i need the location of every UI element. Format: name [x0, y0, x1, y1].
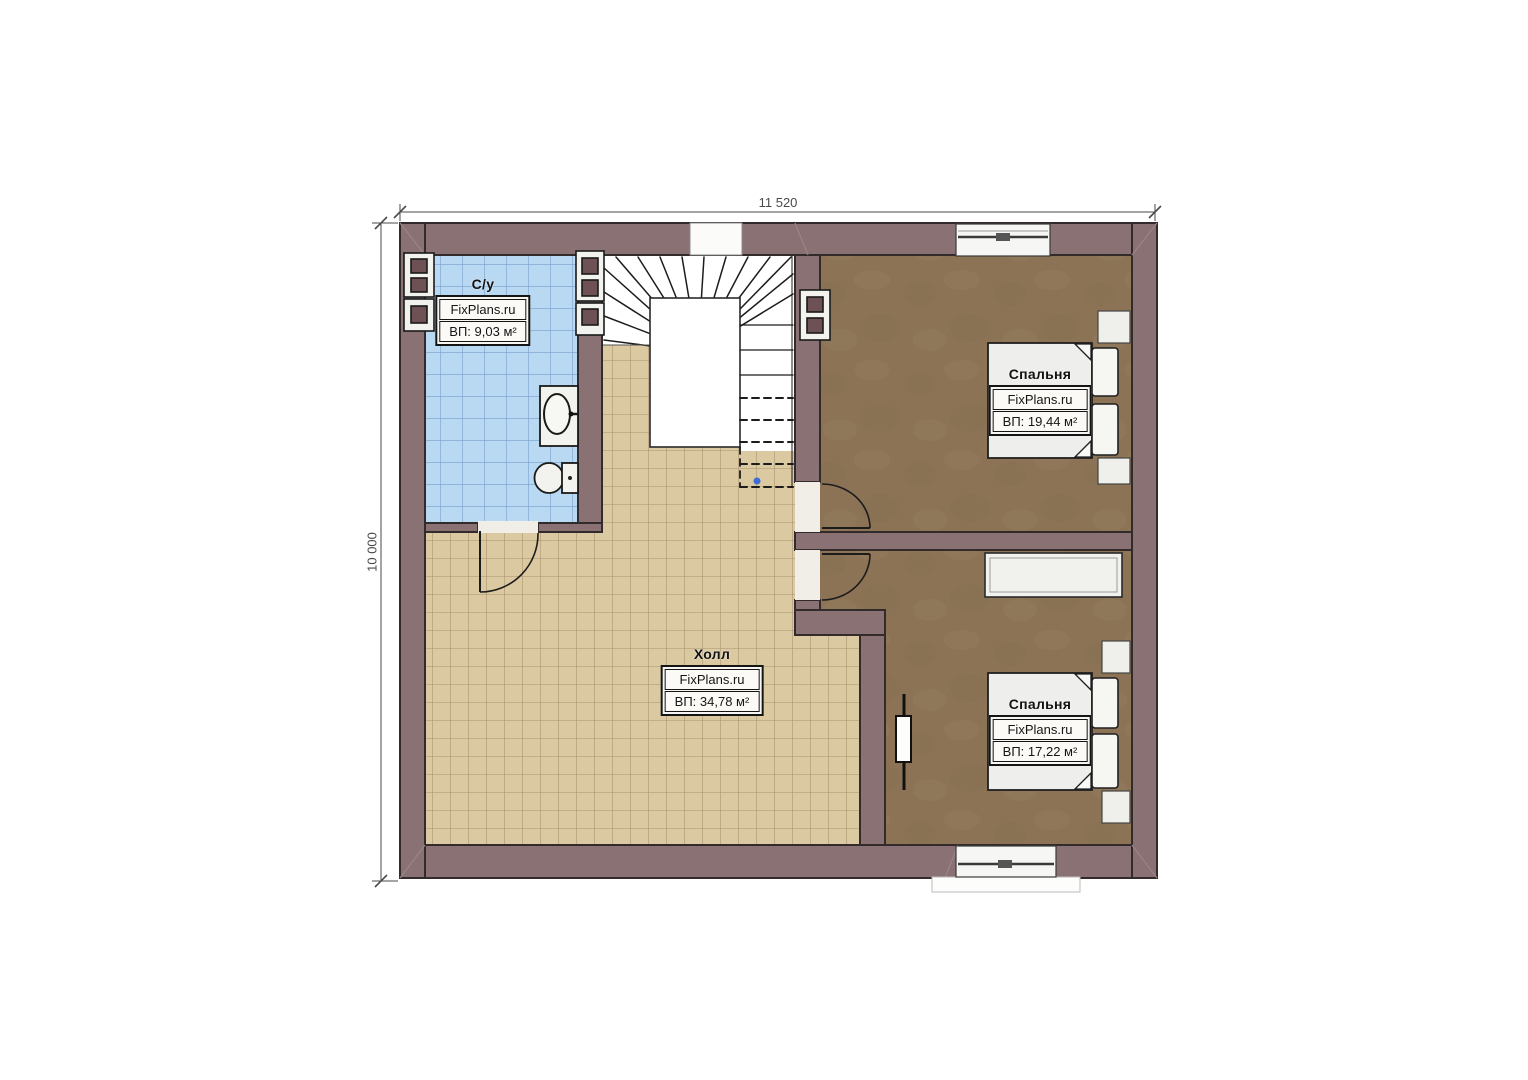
vent-block-bathroom-left-top: [404, 253, 434, 297]
wall-right: [1132, 223, 1157, 878]
dimension-top-label: 11 520: [759, 195, 798, 210]
room-name: Спальня: [989, 366, 1092, 382]
label-stack: FixPlans.ru ВП: 9,03 м²: [435, 295, 530, 346]
toilet: [535, 463, 579, 493]
wardrobe: [985, 553, 1122, 597]
vent-block-bathroom-right-bottom: [576, 303, 604, 335]
stair-landing: [650, 298, 740, 447]
pillow: [1092, 678, 1118, 728]
room-area: ВП: 17,22 м²: [993, 741, 1088, 762]
window-top-center: [690, 223, 742, 255]
room-label-bedroom-top: Спальня FixPlans.ru ВП: 19,44 м²: [989, 366, 1092, 436]
dimension-left-label: 10 000: [365, 532, 380, 572]
label-stack: FixPlans.ru ВП: 34,78 м²: [661, 665, 764, 716]
pillow: [1092, 404, 1118, 455]
watermark: FixPlans.ru: [993, 719, 1088, 740]
nightstand: [1102, 791, 1130, 823]
vent-block-bathroom-left-bottom: [404, 299, 434, 331]
wall-hall-bedrooms: [795, 255, 820, 482]
floor-plan-page: 11 520 10 000 С/у FixPlans.ru ВП: 9,03 м…: [0, 0, 1528, 1080]
wall-bathroom-bottom-left: [425, 523, 478, 532]
watermark: FixPlans.ru: [439, 299, 526, 320]
room-name: Холл: [661, 646, 764, 662]
nightstand: [1102, 641, 1130, 673]
room-area: ВП: 34,78 м²: [665, 691, 760, 712]
wall-jog-vertical: [860, 635, 885, 845]
wall-bathroom-bottom-right: [538, 523, 602, 532]
room-area: ВП: 19,44 м²: [993, 411, 1088, 432]
floor-plan-drawing: [0, 0, 1528, 1080]
room-name: С/у: [435, 276, 530, 292]
room-label-bedroom-bottom: Спальня FixPlans.ru ВП: 17,22 м²: [989, 696, 1092, 766]
room-label-bathroom: С/у FixPlans.ru ВП: 9,03 м²: [435, 276, 530, 346]
nightstand: [1098, 458, 1130, 484]
label-stack: FixPlans.ru ВП: 17,22 м²: [989, 715, 1092, 766]
vent-block-bathroom-right-top: [576, 251, 604, 301]
label-stack: FixPlans.ru ВП: 19,44 м²: [989, 385, 1092, 436]
wall-jog-horizontal: [795, 610, 885, 635]
room-area: ВП: 9,03 м²: [439, 321, 526, 342]
pillow: [1092, 734, 1118, 788]
room-name: Спальня: [989, 696, 1092, 712]
sink: [540, 386, 578, 446]
stair-marker-dot: [754, 478, 761, 485]
window-top-right: [956, 224, 1050, 256]
watermark: FixPlans.ru: [665, 669, 760, 690]
wall-bedroom-divider: [795, 532, 1132, 550]
pillow: [1092, 348, 1118, 396]
room-label-hall: Холл FixPlans.ru ВП: 34,78 м²: [661, 646, 764, 716]
vent-block-bedroom-top: [800, 290, 830, 340]
nightstand: [1098, 311, 1130, 343]
watermark: FixPlans.ru: [993, 389, 1088, 410]
